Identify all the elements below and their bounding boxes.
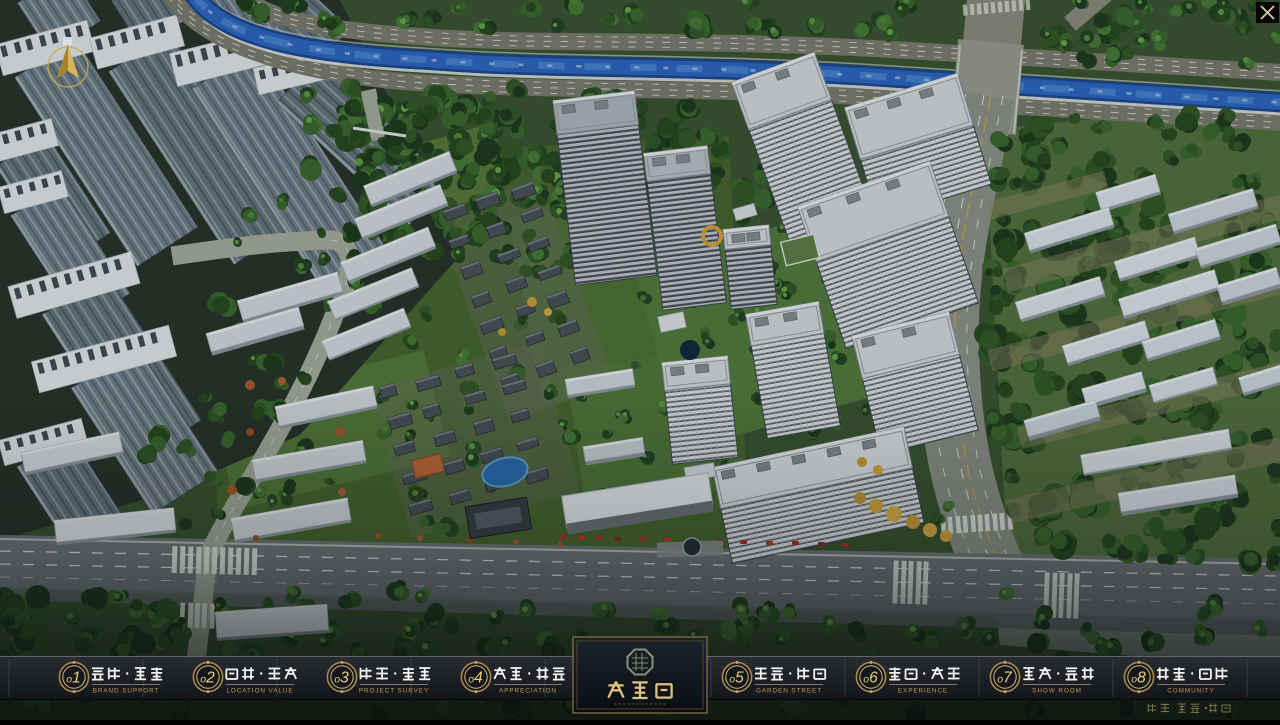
svg-text:BRAND SUPPORT: BRAND SUPPORT xyxy=(93,688,160,695)
svg-text:LOCATION VALUE: LOCATION VALUE xyxy=(226,688,293,695)
svg-text:COMMUNITY: COMMUNITY xyxy=(1167,688,1215,695)
svg-text:GARDEN STREET: GARDEN STREET xyxy=(756,688,822,695)
svg-text:SHOW ROOM: SHOW ROOM xyxy=(1032,688,1082,695)
svg-text:APPRECIATION: APPRECIATION xyxy=(499,688,557,695)
svg-text:PROJECT SURVEY: PROJECT SURVEY xyxy=(359,688,429,695)
svg-text:EXPERIENCE: EXPERIENCE xyxy=(898,688,948,695)
